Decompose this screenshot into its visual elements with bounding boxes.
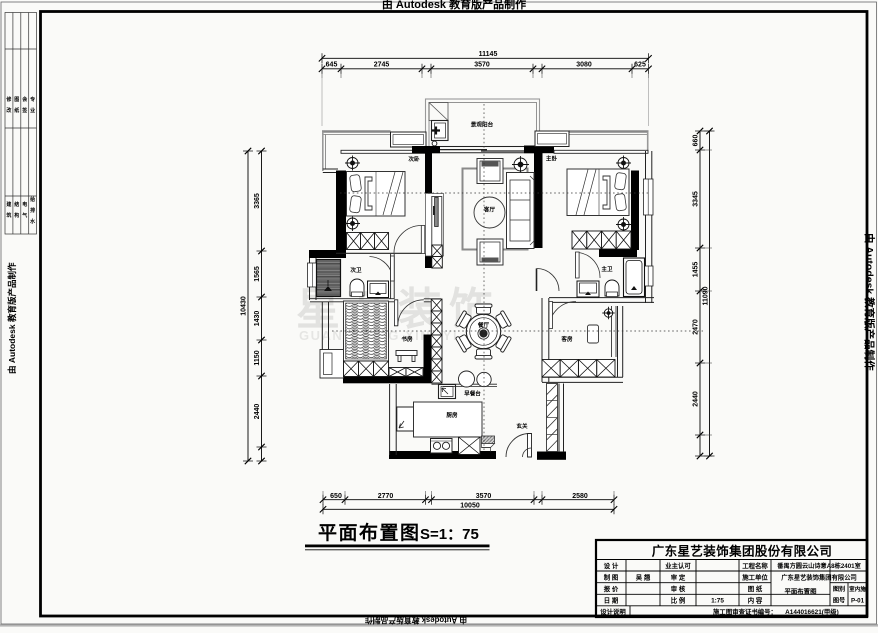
svg-text:排: 排 bbox=[30, 207, 35, 214]
svg-text:1:75: 1:75 bbox=[711, 598, 724, 605]
svg-text:625: 625 bbox=[634, 62, 646, 69]
svg-text:气: 气 bbox=[21, 212, 27, 219]
svg-text:平面布置图: 平面布置图 bbox=[318, 521, 421, 544]
svg-text:水: 水 bbox=[29, 218, 36, 225]
svg-text:P-01: P-01 bbox=[851, 598, 865, 605]
svg-text:早餐台: 早餐台 bbox=[464, 390, 481, 398]
svg-text:广东星艺装饰集团股份有限公司: 广东星艺装饰集团股份有限公司 bbox=[652, 544, 833, 559]
svg-text:10050: 10050 bbox=[460, 503, 480, 510]
svg-text:专: 专 bbox=[30, 96, 35, 103]
svg-text:工程名称: 工程名称 bbox=[742, 561, 768, 570]
svg-text:结: 结 bbox=[14, 201, 19, 208]
svg-text:主卧: 主卧 bbox=[546, 155, 558, 163]
svg-text:10430: 10430 bbox=[241, 296, 248, 316]
svg-text:比 例: 比 例 bbox=[671, 596, 686, 605]
svg-text:建: 建 bbox=[5, 201, 12, 208]
svg-text:修: 修 bbox=[5, 96, 12, 103]
svg-text:660: 660 bbox=[693, 135, 700, 147]
svg-text:广东星艺装饰集团有限公司: 广东星艺装饰集团有限公司 bbox=[781, 572, 857, 581]
svg-text:由 Autodesk 教育版产品制作: 由 Autodesk 教育版产品制作 bbox=[365, 616, 467, 626]
svg-text:设计说明: 设计说明 bbox=[600, 607, 626, 616]
svg-text:制 图: 制 图 bbox=[604, 572, 619, 581]
svg-text:电: 电 bbox=[22, 201, 27, 208]
svg-text:番禺方圆云山诗意A8栋2401室: 番禺方圆云山诗意A8栋2401室 bbox=[776, 562, 861, 570]
svg-text:由 Autodesk 教育版产品制作: 由 Autodesk 教育版产品制作 bbox=[863, 233, 876, 371]
svg-text:645: 645 bbox=[326, 62, 338, 69]
svg-text:图号: 图号 bbox=[833, 597, 845, 605]
svg-text:室内施: 室内施 bbox=[849, 585, 866, 593]
svg-text:11090: 11090 bbox=[703, 286, 710, 305]
svg-text:2745: 2745 bbox=[374, 62, 390, 69]
svg-text:筑: 筑 bbox=[5, 212, 11, 219]
svg-text:审 定: 审 定 bbox=[671, 572, 686, 581]
svg-text:日 期: 日 期 bbox=[604, 596, 619, 605]
svg-text:会: 会 bbox=[21, 96, 27, 103]
svg-text:业: 业 bbox=[30, 107, 35, 114]
svg-text:施工单位: 施工单位 bbox=[742, 572, 768, 581]
svg-text:3345: 3345 bbox=[693, 191, 700, 207]
svg-text:11145: 11145 bbox=[479, 51, 498, 58]
svg-text:1565: 1565 bbox=[254, 266, 261, 282]
svg-text:2580: 2580 bbox=[572, 493, 588, 500]
svg-text:图: 图 bbox=[14, 96, 19, 103]
svg-text:3365: 3365 bbox=[254, 193, 261, 209]
svg-text:650: 650 bbox=[330, 493, 342, 500]
svg-text:景观阳台: 景观阳台 bbox=[470, 121, 494, 129]
svg-text:报 价: 报 价 bbox=[604, 584, 619, 593]
svg-text:吴 翘: 吴 翘 bbox=[636, 572, 651, 581]
svg-text:签: 签 bbox=[21, 107, 28, 114]
svg-text:1150: 1150 bbox=[254, 350, 261, 365]
svg-text:2770: 2770 bbox=[378, 493, 394, 500]
svg-text:客房: 客房 bbox=[560, 335, 573, 343]
svg-text:次卧: 次卧 bbox=[408, 155, 420, 163]
svg-text:书房: 书房 bbox=[401, 335, 413, 343]
svg-text:主卫: 主卫 bbox=[601, 265, 613, 273]
svg-text:图别: 图别 bbox=[833, 585, 845, 593]
svg-text:给: 给 bbox=[30, 196, 35, 203]
svg-text:1455: 1455 bbox=[693, 262, 700, 278]
svg-text:2440: 2440 bbox=[693, 391, 700, 407]
svg-text:施工图审查证书编号：: 施工图审查证书编号： bbox=[713, 607, 777, 616]
svg-text:3570: 3570 bbox=[476, 493, 492, 500]
svg-text:1430: 1430 bbox=[254, 311, 261, 327]
svg-text:S=1：75: S=1：75 bbox=[420, 526, 479, 543]
svg-text:2440: 2440 bbox=[254, 404, 261, 420]
svg-text:由 Autodesk 教育版产品制作: 由 Autodesk 教育版产品制作 bbox=[382, 0, 526, 11]
svg-text:内 容: 内 容 bbox=[748, 596, 763, 605]
svg-text:业主认可: 业主认可 bbox=[665, 561, 691, 570]
svg-text:平面布置图: 平面布置图 bbox=[785, 587, 817, 596]
svg-text:审 核: 审 核 bbox=[671, 584, 686, 593]
svg-text:厨房: 厨房 bbox=[446, 411, 458, 419]
svg-text:纸: 纸 bbox=[14, 107, 19, 114]
svg-text:A144016621(甲级): A144016621(甲级) bbox=[785, 607, 839, 616]
svg-text:次卫: 次卫 bbox=[350, 266, 362, 274]
svg-text:由 Autodesk 教育版产品制作: 由 Autodesk 教育版产品制作 bbox=[7, 262, 17, 374]
svg-text:构: 构 bbox=[14, 212, 19, 219]
svg-text:图 纸: 图 纸 bbox=[748, 584, 763, 593]
svg-text:玄关: 玄关 bbox=[516, 422, 528, 430]
svg-text:餐厅: 餐厅 bbox=[477, 321, 490, 329]
svg-text:3080: 3080 bbox=[576, 62, 592, 69]
svg-text:2470: 2470 bbox=[693, 319, 700, 335]
svg-text:3570: 3570 bbox=[474, 62, 490, 69]
svg-text:设 计: 设 计 bbox=[604, 561, 619, 570]
svg-text:客厅: 客厅 bbox=[483, 206, 496, 214]
